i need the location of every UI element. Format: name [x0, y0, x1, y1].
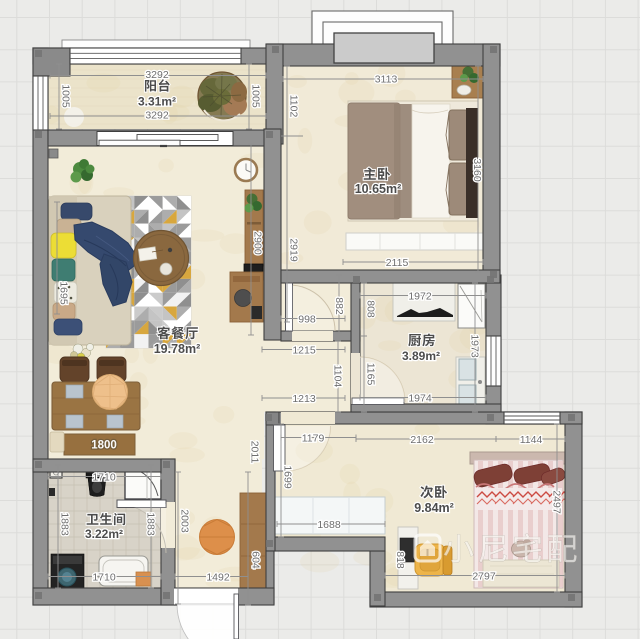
svg-text:1699: 1699 [282, 465, 294, 489]
svg-text:1144: 1144 [520, 434, 543, 446]
svg-text:3.89m²: 3.89m² [402, 349, 440, 363]
svg-text:818: 818 [394, 551, 406, 569]
svg-text:1179: 1179 [302, 432, 325, 444]
svg-text:3292: 3292 [145, 110, 169, 122]
svg-text:1165: 1165 [365, 363, 377, 386]
svg-text:808: 808 [365, 300, 377, 318]
svg-text:2919: 2919 [288, 238, 300, 262]
svg-text:1972: 1972 [408, 290, 432, 302]
svg-text:1213: 1213 [292, 393, 316, 405]
svg-text:1800: 1800 [91, 440, 117, 452]
svg-text:1883: 1883 [145, 512, 157, 536]
svg-text:19.78m²: 19.78m² [154, 342, 201, 356]
svg-text:1104: 1104 [332, 365, 344, 388]
svg-text:2162: 2162 [410, 434, 434, 446]
svg-text:1710: 1710 [92, 471, 116, 483]
svg-text:3113: 3113 [375, 74, 398, 86]
svg-text:3160: 3160 [471, 158, 483, 182]
svg-text:3.31m²: 3.31m² [138, 95, 176, 109]
svg-text:10.65m²: 10.65m² [355, 182, 402, 196]
svg-text:1710: 1710 [92, 571, 116, 583]
svg-text:1973: 1973 [469, 334, 481, 358]
svg-text:2003: 2003 [179, 509, 191, 533]
svg-text:1974: 1974 [408, 392, 432, 404]
svg-text:1688: 1688 [317, 519, 341, 531]
svg-text:2115: 2115 [386, 257, 409, 269]
svg-text:2497: 2497 [551, 490, 563, 514]
svg-text:9.84m²: 9.84m² [414, 501, 454, 515]
svg-text:2797: 2797 [472, 570, 496, 582]
svg-text:1883: 1883 [59, 512, 71, 536]
svg-text:2900: 2900 [252, 231, 264, 255]
svg-text:1215: 1215 [292, 344, 316, 356]
svg-text:1005: 1005 [250, 84, 262, 108]
svg-text:1005: 1005 [60, 84, 72, 108]
svg-text:604: 604 [250, 551, 262, 569]
svg-text:1492: 1492 [206, 571, 230, 583]
svg-text:3.22m²: 3.22m² [85, 527, 123, 541]
svg-text:2011: 2011 [249, 441, 261, 464]
svg-text:882: 882 [333, 297, 345, 315]
svg-text:1102: 1102 [288, 95, 300, 118]
svg-text:1695: 1695 [58, 281, 70, 305]
svg-text:998: 998 [298, 313, 316, 325]
